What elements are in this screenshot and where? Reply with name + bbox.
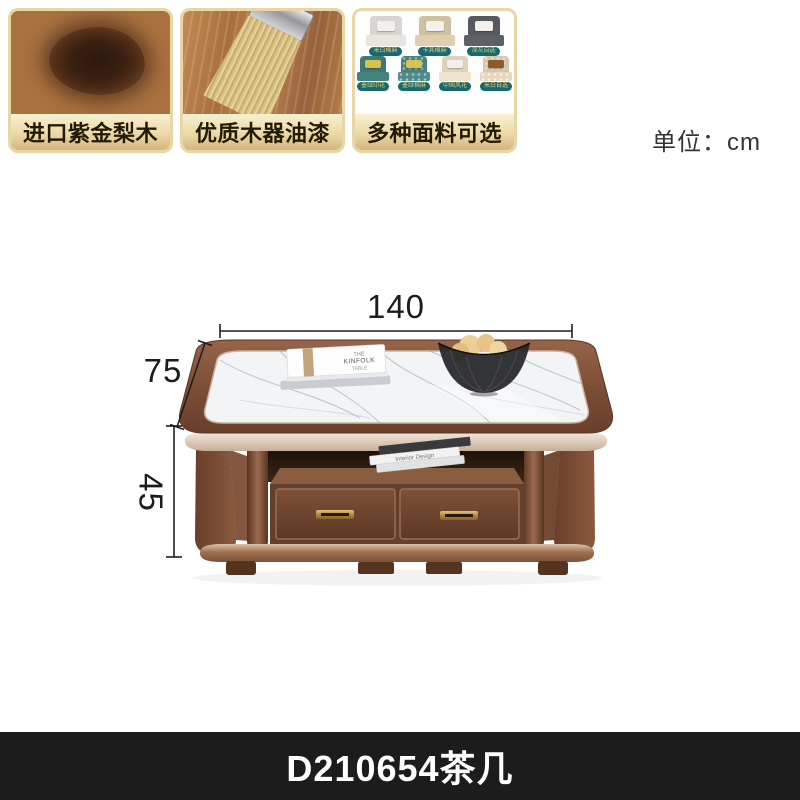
feature-card-paint: 优质木器油漆 bbox=[180, 8, 345, 153]
book-title-line: TABLE bbox=[352, 365, 368, 372]
fabric-swatch: 墨绿印花 bbox=[357, 56, 389, 91]
swatch-badge: 中国风花 bbox=[439, 82, 471, 91]
height-dimension-value: 45 bbox=[135, 458, 168, 528]
coffee-table-illustration: THE KINFOLK TABLE Interior Des bbox=[130, 290, 660, 602]
swatch-badge: 深灰自选 bbox=[467, 47, 499, 56]
feature-card-fabric: 米白棉麻 卡其棉麻 深灰自选 墨绿印花 bbox=[352, 8, 517, 153]
unit-label: 单位：cm bbox=[652, 122, 761, 157]
drawer-handle bbox=[440, 511, 478, 520]
cushion-thumbnail bbox=[366, 16, 406, 46]
feature-card-label: 进口紫金梨木 bbox=[11, 114, 170, 150]
fabric-swatch-grid: 米白棉麻 卡其棉麻 深灰自选 墨绿印花 bbox=[355, 11, 514, 114]
cushion-thumbnail bbox=[398, 56, 430, 81]
fabric-swatch: 墨绿棉麻 bbox=[398, 56, 430, 91]
dimension-diagram: THE KINFOLK TABLE Interior Des bbox=[130, 290, 660, 602]
swatch-badge: 墨绿印花 bbox=[357, 82, 389, 91]
product-code-banner: D210654茶几 bbox=[0, 732, 800, 800]
width-dimension-value: 140 bbox=[351, 290, 441, 323]
wood-cross-section-image bbox=[11, 11, 170, 114]
tabletop-books: THE KINFOLK TABLE bbox=[279, 344, 391, 390]
swatch-badge: 米白自选 bbox=[480, 82, 512, 91]
cushion-thumbnail bbox=[464, 16, 504, 46]
cushion-thumbnail bbox=[357, 56, 389, 81]
feature-card-wood: 进口紫金梨木 bbox=[8, 8, 173, 153]
product-code-text: D210654茶几 bbox=[286, 740, 513, 792]
feature-card-label: 多种面料可选 bbox=[355, 114, 514, 150]
cushion-thumbnail bbox=[439, 56, 471, 81]
swatch-badge: 墨绿棉麻 bbox=[398, 82, 430, 91]
width-dimension-line bbox=[220, 324, 572, 338]
drawer-handle bbox=[316, 510, 354, 519]
fabric-swatch: 米白自选 bbox=[480, 56, 512, 91]
swatch-badge: 米白棉麻 bbox=[369, 47, 401, 56]
fabric-swatch: 中国风花 bbox=[439, 56, 471, 91]
fabric-swatch: 深灰自选 bbox=[464, 16, 504, 56]
fabric-swatch: 卡其棉麻 bbox=[415, 16, 455, 56]
paint-brush-icon bbox=[208, 11, 319, 114]
cushion-thumbnail bbox=[415, 16, 455, 46]
feature-card-label: 优质木器油漆 bbox=[183, 114, 342, 150]
fabric-swatch: 米白棉麻 bbox=[366, 16, 406, 56]
depth-dimension-value: 75 bbox=[136, 354, 190, 387]
cushion-thumbnail bbox=[480, 56, 512, 81]
swatch-row-1: 米白棉麻 卡其棉麻 深灰自选 bbox=[355, 16, 514, 56]
paint-brush-image bbox=[183, 11, 342, 114]
swatch-badge: 卡其棉麻 bbox=[418, 47, 450, 56]
feature-card-list: 进口紫金梨木 优质木器油漆 米白棉麻 卡其棉麻 bbox=[8, 8, 517, 153]
swatch-row-2: 墨绿印花 墨绿棉麻 中国风花 米白自选 bbox=[355, 56, 514, 91]
product-infographic: { "unit_label": "单位：cm", "dimensions": {… bbox=[0, 0, 800, 800]
